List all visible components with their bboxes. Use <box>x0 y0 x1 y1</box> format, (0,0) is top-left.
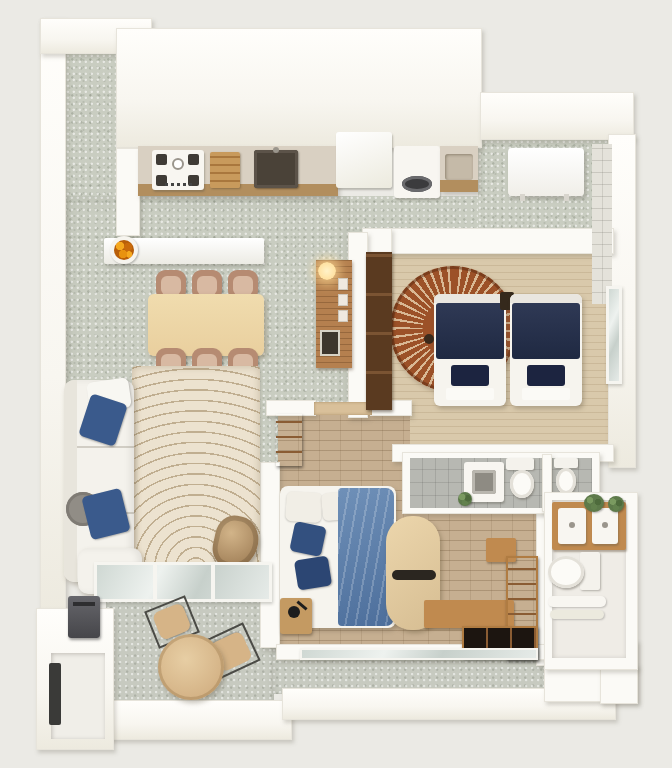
outer-wall-left <box>40 18 66 616</box>
door-threshold <box>314 402 372 415</box>
framed-art <box>320 330 340 356</box>
wc-toilet-bowl <box>548 556 584 588</box>
bedroom-glass-door <box>300 648 538 660</box>
dining-table <box>148 294 264 356</box>
cooktop <box>152 150 204 190</box>
wall-lamp-icon <box>318 262 336 280</box>
ac-vent <box>73 602 95 606</box>
cooktop-buttons <box>165 183 193 186</box>
kitchen-sink <box>254 150 298 188</box>
wc-plant <box>608 496 624 512</box>
bathroom-plant <box>458 492 472 506</box>
kitchen-left-wall <box>116 148 140 236</box>
desk-lamp-icon <box>288 606 300 618</box>
navy-pillow <box>451 365 489 386</box>
twin-bed-left <box>434 294 506 406</box>
wc-plant <box>584 494 604 512</box>
hall-bookshelf <box>276 414 302 466</box>
master-nightstand <box>280 598 312 634</box>
cooktop-dial-icon <box>172 158 184 170</box>
washing-machine <box>394 146 440 198</box>
tiled-wall <box>592 144 612 304</box>
toilet-bowl <box>510 470 534 498</box>
navy-pillow <box>527 365 565 386</box>
slat-accent-wall <box>316 260 352 368</box>
heater-leg <box>520 194 525 201</box>
water-heater <box>508 148 584 196</box>
headboard <box>434 294 506 303</box>
sheet-fold <box>446 388 494 400</box>
basin-inset <box>445 154 473 180</box>
balcony-round-table <box>158 634 224 700</box>
headboard <box>510 294 582 303</box>
kitchen-floor-strip <box>350 196 480 232</box>
washer-door-icon <box>402 176 432 192</box>
cutting-board <box>210 152 240 188</box>
toilet-second-tank <box>554 458 578 468</box>
burner-icon <box>156 154 167 165</box>
wood-bench <box>424 600 514 628</box>
picture-frame-icon <box>338 278 348 290</box>
outer-wall-bottom-left <box>90 700 292 740</box>
navy-pillow <box>289 521 327 557</box>
navy-duvet <box>512 303 580 359</box>
toilet-tank <box>506 458 534 470</box>
storage-dark-slot <box>49 663 61 725</box>
ac-unit <box>68 596 100 638</box>
glass-mullion <box>211 565 215 599</box>
fruit-oranges <box>114 240 134 260</box>
faucet-icon <box>273 147 279 153</box>
rug-knob <box>424 334 434 344</box>
basin-drain <box>602 522 608 528</box>
twin-wardrobe <box>366 252 392 410</box>
wc-towel <box>548 596 606 607</box>
wc-washbasin <box>558 508 586 544</box>
floor-plan-render <box>0 0 672 768</box>
basin-drain <box>569 522 575 528</box>
heater-leg <box>564 194 569 201</box>
twin-bedroom-top-wall <box>388 228 614 254</box>
desk-slot <box>392 570 436 580</box>
counter-basin-unit <box>440 146 478 192</box>
glass-mullion <box>153 565 157 599</box>
navy-pillow <box>294 556 332 591</box>
living-bedroom-wall <box>260 462 280 648</box>
navy-duvet <box>436 303 504 359</box>
wc-towel <box>550 610 604 619</box>
refrigerator <box>336 132 392 188</box>
outer-wall-top <box>116 28 482 148</box>
sofa-seam <box>77 446 134 448</box>
twin-bedroom-window <box>606 286 622 384</box>
picture-frame-icon <box>338 310 348 322</box>
white-pillow <box>285 491 323 523</box>
outer-wall-top-right <box>480 92 634 140</box>
burner-icon <box>188 154 199 165</box>
picture-frame-icon <box>338 294 348 306</box>
vanity-basin <box>472 470 496 494</box>
toilet-second-bowl <box>556 468 576 494</box>
fruit-bowl <box>110 236 138 264</box>
wc-washbasin <box>592 508 618 544</box>
sofa-backrest <box>64 380 77 582</box>
sheet-fold <box>522 388 570 400</box>
twin-bed-right <box>510 294 582 406</box>
